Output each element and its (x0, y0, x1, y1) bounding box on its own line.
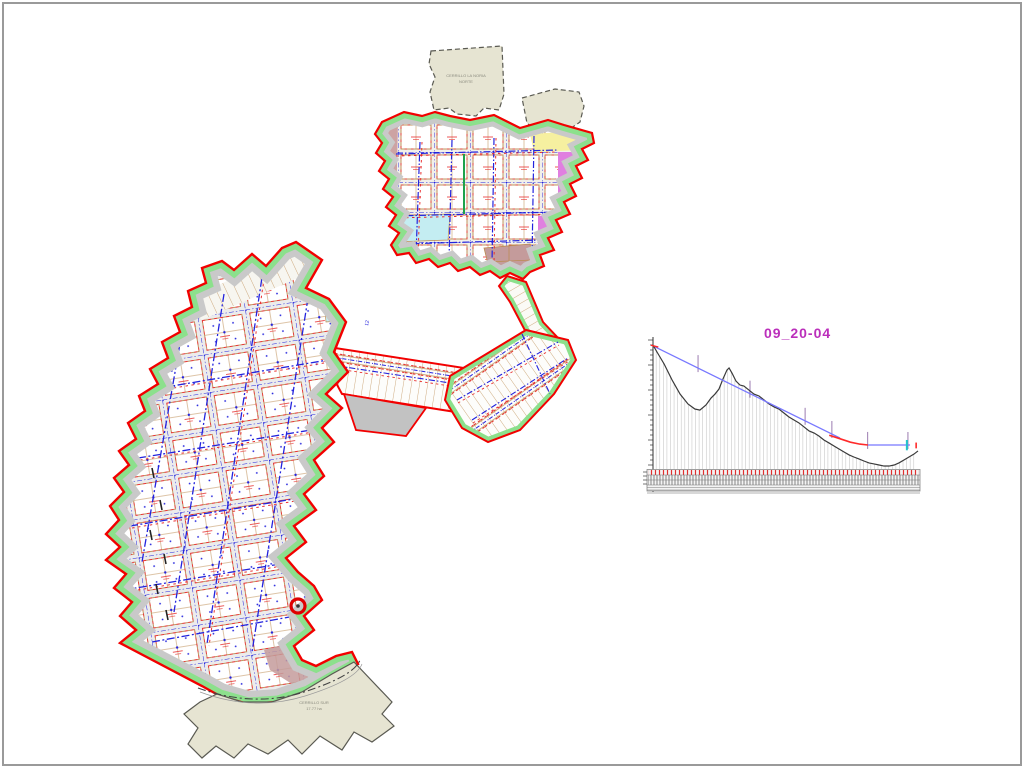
profile-chart-plot (648, 337, 918, 492)
drawing-sheet-frame: CERRILLO LA NORIA NORTE (2, 2, 1022, 766)
profile-chart-title: 09_20-04 (764, 325, 831, 341)
hill-area-south-label-1: CERRILLO SUR (299, 700, 329, 705)
hill-area-north-label-1: CERRILLO LA NORIA (446, 73, 486, 78)
hill-area-north-label-2: NORTE (459, 79, 473, 84)
profile-data-band (643, 470, 920, 494)
profile-chart: 09_20-04 (643, 325, 920, 493)
main-plan-area: 12 (97, 232, 371, 712)
cad-drawing-canvas[interactable]: CERRILLO LA NORIA NORTE (4, 4, 1024, 768)
hill-area-south-label-2: 17.77 ha (306, 706, 322, 711)
upper-plan-area (372, 107, 602, 287)
station-number-label: 12 (364, 320, 371, 327)
rotated-parcel-cluster (437, 322, 587, 452)
